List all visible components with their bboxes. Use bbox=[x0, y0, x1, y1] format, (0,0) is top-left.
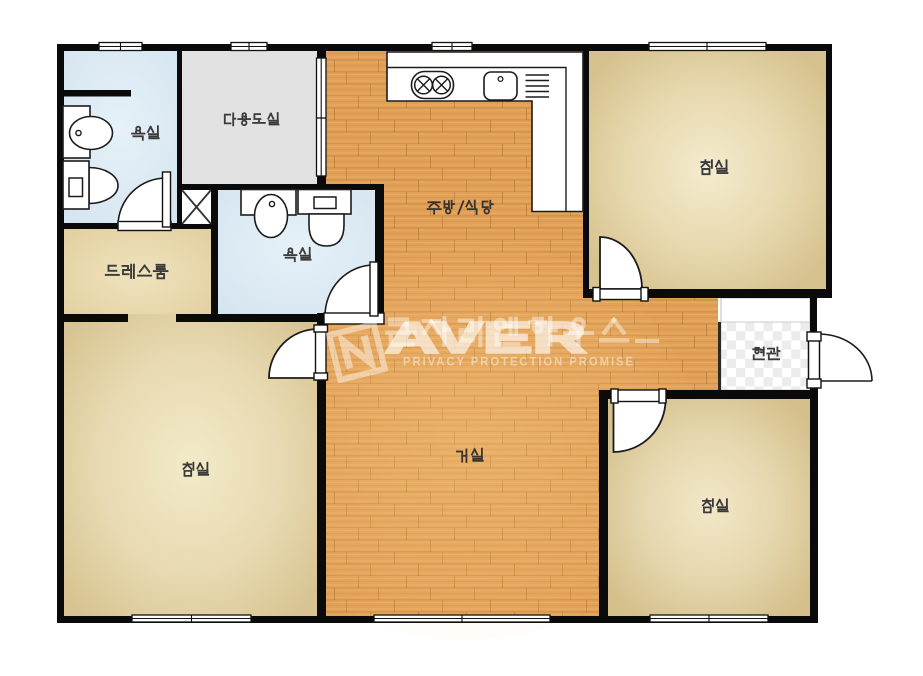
svg-text:PRIVACY PROTECTION PROMISE: PRIVACY PROTECTION PROMISE bbox=[403, 357, 635, 369]
svg-text:AVER: AVER bbox=[385, 314, 586, 363]
